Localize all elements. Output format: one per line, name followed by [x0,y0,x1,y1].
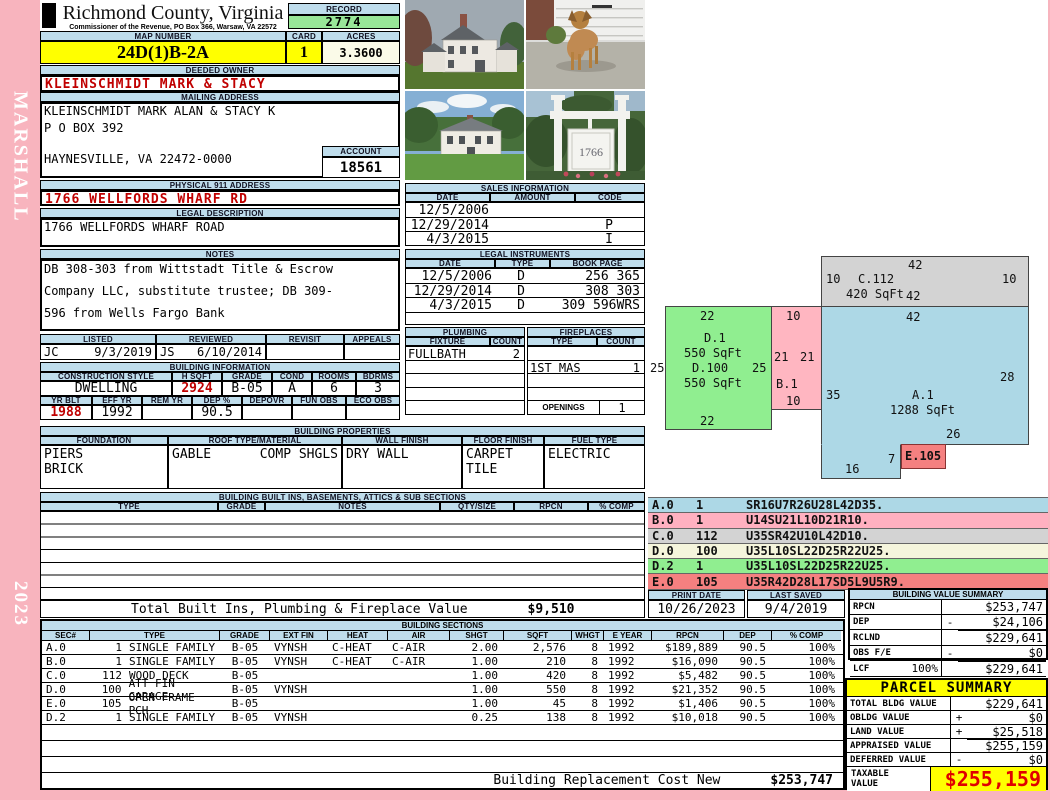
legend-num: 1 [696,498,746,512]
sketch-c-name: C.112 [858,272,894,286]
parcel-row-taxable: TAXABLE VALUE $255,159 [847,767,1046,791]
type-name: SINGLE FAMILY [129,655,215,668]
instr-date: 4/3/2015 [406,298,492,312]
vs-rpcn-op [942,600,958,615]
legend-num: 1 [696,559,746,573]
grade: B-05 [220,641,270,654]
sketch-d-bottom-dim: 22 [700,414,714,428]
sales-date-label: DATE [405,193,490,202]
record-value: 2774 [288,15,400,29]
sketch-region-a [821,306,1029,445]
whgt: 8 [572,641,604,654]
type: 1SINGLE FAMILY [90,711,220,724]
air [388,711,450,724]
parcel-land-label: LAND VALUE [847,725,951,739]
building-sections-table: BUILDING SECTIONS SEC# TYPE GRADE EXT FI… [40,619,845,790]
sign-number-text: 1766 [579,145,603,159]
funobs-label: FUN OBS [292,396,346,405]
rpcn: $10,018 [652,711,724,724]
wall-finish-label: WALL FINISH [342,436,462,445]
depovr-label: DEPOVR [242,396,292,405]
sketch-b-name: B.1 [776,377,798,391]
built-ins-empty-rows [40,511,645,600]
parcel-total-op [951,697,967,711]
vs-row-dep: DEP - $24,106 [850,615,1046,630]
rpcn: $21,352 [652,683,724,696]
rooms-value: 6 [312,381,356,396]
legend-code: SR16U7R26U28L42D35. [746,498,883,512]
comp: 100% [772,655,841,668]
hsqft-value: 2924 [172,381,222,396]
instr-date: 12/29/2014 [406,284,492,298]
sales-code [574,203,644,217]
legend-sec: C.0 [648,529,696,543]
grade-value: B-05 [222,381,272,396]
parcel-row-deferred: DEFERRED VALUE - $0 [847,753,1046,767]
sales-date: 12/5/2006 [406,203,489,217]
vs-row-obs: OBS F/E - $0 [850,646,1046,661]
sketch-b-top-dim: 10 [786,309,800,323]
funobs-value [292,405,346,420]
commissioner-line: Commissioner of the Revenue, PO Box 366,… [58,24,288,31]
plumbing-fixture-label: FIXTURE [405,337,490,346]
sales-amount [489,232,574,247]
fireplace-row [528,374,644,388]
ecoobs-value [346,405,400,420]
vs-rpcn-value: $253,747 [958,600,1046,615]
vs-obs-op: - [942,646,958,661]
parcel-appraised-value: $255,159 [967,739,1046,753]
sec: D.2 [42,711,90,724]
rpcn: $16,090 [652,655,724,668]
construction-style-label: CONSTRUCTION STYLE [40,372,172,381]
sketch-a-left-dim: 35 [826,388,840,402]
vs-lcf-value: $229,641 [958,661,1046,677]
cond-label: COND [272,372,312,381]
comp: 100% [772,669,841,682]
parcel-appraised-label: APPRAISED VALUE [847,739,951,753]
sales-code: P [574,218,644,232]
listed-date: 9/3/2019 [94,345,152,359]
openings-count: 1 [600,401,644,414]
col-heat-label: HEAT [328,631,388,641]
photo-house-front[interactable] [405,0,524,89]
sketch-b-right-dim: 21 [800,350,814,364]
parcel-summary: PARCEL SUMMARY TOTAL BLDG VALUE $229,641… [845,678,1048,790]
replacement-cost-value: $253,747 [770,773,833,788]
rooms-label: ROOMS [312,372,356,381]
shgt: 0.25 [450,711,504,724]
sec: B.0 [42,655,90,668]
listed-label: LISTED [40,334,156,344]
sec: C.0 [42,669,90,682]
legend-code: U35SR42U10L42D10. [746,529,869,543]
sqft: 2,576 [504,641,572,654]
type: 1SINGLE FAMILY [90,655,220,668]
sketch-d-top-dim: 22 [700,309,714,323]
type: 1SINGLE FAMILY [90,641,220,654]
remyr-label: REM YR [142,396,192,405]
legend-row-c: C.0 112 U35SR42U10L42D10. [648,529,1048,544]
sketch-c-left-dim: 10 [826,272,840,286]
built-ins-rpcn-label: RPCN [514,502,588,511]
vs-rpcn-label: RPCN [850,600,942,615]
plumbing-title: PLUMBING [405,327,525,337]
building-properties-title: BUILDING PROPERTIES [40,426,645,436]
grade: B-05 [220,669,270,682]
appeals-label: APPEALS [344,334,400,344]
yrblt-label: YR BLT [40,396,92,405]
built-ins-grade-label: GRADE [218,502,265,511]
type-name: SINGLE FAMILY [129,711,215,724]
heat: C-HEAT [328,655,388,668]
foundation-label: FOUNDATION [40,436,168,445]
foundation-line-1: PIERS [44,447,164,462]
parcel-land-value: $25,518 [967,725,1046,739]
building-sections-header: SEC# TYPE GRADE EXT FIN HEAT AIR SHGT SQ… [42,631,843,641]
appeals-value [344,344,400,360]
dep-pct-value: 90.5 [192,405,242,420]
photo-address-sign[interactable]: 1766 [526,91,645,180]
floor-line-2: TILE [466,462,540,477]
type-num: 100 [90,683,122,696]
instr-type: D [492,284,550,298]
grade: B-05 [220,683,270,696]
rpcn: $5,482 [652,669,724,682]
built-ins-qty-label: QTY/SIZE [440,502,514,511]
print-date-value: 10/26/2023 [648,600,745,618]
sketch-d-left-dim: 25 [650,361,664,375]
whgt: 8 [572,711,604,724]
comp: 100% [772,683,841,696]
ext-fin [270,669,328,682]
instr-book: 308 303 [550,284,644,298]
whgt: 8 [572,683,604,696]
instrument-row: 4/3/2015 D 309 596WRS [406,298,644,313]
fireplace-type: 1ST MAS [528,361,614,374]
fuel-type-label: FUEL TYPE [544,436,645,445]
revisit-value [266,344,344,360]
last-saved-label: LAST SAVED [747,590,845,600]
plumbing-row [406,388,524,402]
hsqft-label: H SQFT [172,372,222,381]
reviewed-date: 6/10/2014 [197,345,262,359]
parcel-row-total: TOTAL BLDG VALUE $229,641 [847,697,1046,711]
plumbing-row: FULLBATH 2 [406,347,524,361]
dep: 90.5 [724,697,772,710]
legend-sec: D.0 [648,544,696,558]
legend-code: U14SU21L10D21R10. [746,513,869,527]
sketch-b-left-dim: 21 [774,350,788,364]
col-shgt-label: SHGT [450,631,504,641]
fireplaces-count-label: COUNT [597,337,645,346]
sec: D.0 [42,683,90,696]
page-title: Richmond County, Virginia [58,2,288,25]
sketch-c-sqft: 420 SqFt [846,287,904,301]
parcel-deferred-label: DEFERRED VALUE [847,753,951,767]
rpcn: $1,406 [652,697,724,710]
built-ins-title: BUILDING BUILT INS, BASEMENTS, ATTICS & … [40,492,645,502]
sketch-d-right-dim: 25 [752,361,766,375]
empty-row [42,725,843,741]
type-num: 105 [90,697,122,710]
instr-date-label: DATE [405,259,495,268]
foundation-line-2: BRICK [44,462,164,477]
mailing-line-3: HAYNESVILLE, VA 22472-0000 [44,152,232,166]
legend-code: U35R42D28L17SD5L9U5R9. [746,575,905,589]
grade-label: GRADE [222,372,272,381]
vs-rclnd-op [942,630,958,646]
instr-book-label: BOOK PAGE [550,259,645,268]
instr-type-label: TYPE [495,259,550,268]
roof-type-value: GABLE [172,447,211,462]
instrument-row: 12/29/2014 D 308 303 [406,284,644,299]
instruments-table: 12/5/2006 D 256 365 12/29/2014 D 308 303… [405,268,645,325]
fireplaces-title: FIREPLACES [527,327,645,337]
eyear: 1992 [604,683,652,696]
vs-row-rclnd: RCLND $229,641 [850,630,1046,646]
type-num: 1 [90,711,122,724]
eyear: 1992 [604,711,652,724]
plumbing-row [406,374,524,388]
legend-row-d0: D.0 100 U35L10SL22D25R22U25. [648,544,1048,559]
sketch-a-step-dim: 7 [888,452,895,466]
legend-sec: E.0 [648,575,696,589]
sales-info-title: SALES INFORMATION [405,183,645,193]
air: C-AIR [388,655,450,668]
ext-fin [270,697,328,710]
vs-dep-value: $24,106 [958,615,1046,630]
mailing-line-2: P O BOX 392 [44,121,123,135]
sales-row: 12/5/2006 [406,203,644,218]
bdrms-value: 3 [356,381,400,396]
photo-house-lawn[interactable] [405,91,524,180]
effyr-value: 1992 [92,405,142,420]
col-ext-label: EXT FIN [270,631,328,641]
type-num: 112 [90,669,122,682]
col-sec-label: SEC# [42,631,90,641]
roof-material-value: COMP SHGLS [260,447,338,462]
vs-lcf-pct: 100% [912,662,939,675]
fireplaces-table: 1ST MAS 1 OPENINGS 1 [527,346,645,415]
legend-num: 112 [696,529,746,543]
taxable-value: $255,159 [931,767,1046,791]
eyear: 1992 [604,669,652,682]
comp: 100% [772,641,841,654]
instr-book: 256 365 [550,269,644,283]
type-num: 1 [90,655,122,668]
legal-description-value: 1766 WELLFORDS WHARF ROAD [44,220,225,234]
ext-fin: VYNSH [270,655,328,668]
floor-finish-value: CARPET TILE [462,445,544,489]
sketch-a-bottom-dim: 16 [845,462,859,476]
comp: 100% [772,711,841,724]
sketch-c-top-dim: 42 [908,258,922,272]
sketch-c-bottom-dim: 42 [906,289,920,303]
vs-rclnd-label: RCLND [850,630,942,646]
wall-finish-value: DRY WALL [342,445,462,489]
eyear: 1992 [604,641,652,654]
reviewed-label: REVIEWED [156,334,266,344]
sketch-a-sqft: 1288 SqFt [890,403,955,417]
record-card-app: { "side": { "name": "MARSHALL", "year": … [0,0,1050,800]
shgt: 2.00 [450,641,504,654]
heat: C-HEAT [328,641,388,654]
print-date-label: PRINT DATE [648,590,745,600]
vs-dep-op: - [942,615,958,630]
parcel-obldg-op: + [951,711,967,725]
instr-type: D [492,298,550,312]
vs-lcf-label: LCF 100% [850,661,942,677]
legend-num: 1 [696,513,746,527]
plumbing-count: 2 [492,347,524,360]
sketch-b-bottom-dim: 10 [786,394,800,408]
air [388,697,450,710]
shgt: 1.00 [450,683,504,696]
legend-num: 105 [696,575,746,589]
sales-row: 12/29/2014 P [406,218,644,233]
notes-line-1: DB 308-303 from Wittstadt Title & Escrow [44,262,333,276]
type-num: 1 [90,641,122,654]
photo-dog[interactable] [526,0,645,89]
taxable-label: TAXABLE VALUE [847,767,931,791]
legend-row-d2: D.2 1 U35L10SL22D25R22U25. [648,559,1048,574]
remyr-value [142,405,192,420]
col-whgt-label: WHGT [572,631,604,641]
type: 105OPEN FRAME PCH [90,697,220,710]
mailing-address-label: MAILING ADDRESS [40,92,400,102]
legend-sec: D.2 [648,559,696,573]
legend-row-a: A.0 1 SR16U7R26U28L42D35. [648,498,1048,513]
col-eyear-label: E YEAR [604,631,652,641]
heat [328,669,388,682]
sketch-e-name: E.105 [905,449,941,463]
record-label: RECORD [288,3,400,15]
vs-row-lcf: LCF 100% $229,641 [850,661,1046,677]
sketch-d100-sqft: 550 SqFt [684,376,742,390]
cond-value: A [272,381,312,396]
vs-rclnd-value: $229,641 [958,630,1046,646]
air [388,669,450,682]
parcel-land-op: + [951,725,967,739]
heat [328,683,388,696]
shgt: 1.00 [450,697,504,710]
parcel-row-land: LAND VALUE + $25,518 [847,725,1046,739]
fireplace-row [528,388,644,402]
listed-value: JC9/3/2019 [40,344,156,360]
eyear: 1992 [604,697,652,710]
sketch-c-right-dim: 10 [1002,272,1016,286]
mailing-line-1: KLEINSCHMIDT MARK ALAN & STACY K [44,104,275,118]
sales-amount [489,218,574,232]
building-sections-title: BUILDING SECTIONS [42,621,843,631]
openings-label: OPENINGS [528,401,600,414]
whgt: 8 [572,697,604,710]
ecoobs-label: ECO OBS [346,396,400,405]
grade: B-05 [220,711,270,724]
dep-pct-label: DEP % [192,396,242,405]
instr-type: D [492,269,550,283]
air: C-AIR [388,641,450,654]
fuel-type-value: ELECTRIC [544,445,645,489]
legend-num: 100 [696,544,746,558]
legend-code: U35L10SL22D25R22U25. [746,544,891,558]
sec: E.0 [42,697,90,710]
parcel-row-appraised: APPRAISED VALUE $255,159 [847,739,1046,753]
replacement-cost-label: Building Replacement Cost New [493,773,720,788]
spine-year: 2023 [0,568,40,640]
col-comp-label: % COMP [772,631,841,641]
building-info-title: BUILDING INFORMATION [40,362,400,372]
eyear: 1992 [604,655,652,668]
col-sqft-label: SQFT [504,631,572,641]
reviewed-value: JS6/10/2014 [156,344,266,360]
section-row: D.2 1SINGLE FAMILY B-05 VYNSH 0.25 138 8… [42,711,843,725]
parcel-appraised-op [951,739,967,753]
grade: B-05 [220,655,270,668]
dep: 90.5 [724,669,772,682]
notes-label: NOTES [40,249,400,259]
instr-book: 309 596WRS [550,298,644,312]
construction-style-value: DWELLING [40,381,172,396]
rpcn: $189,889 [652,641,724,654]
sqft: 45 [504,697,572,710]
roof-label: ROOF TYPE/MATERIAL [168,436,342,445]
reviewed-by: JS [160,345,174,359]
parcel-total-label: TOTAL BLDG VALUE [847,697,951,711]
replacement-cost-row: Building Replacement Cost New $253,747 [42,773,843,788]
ext-fin: VYNSH [270,683,328,696]
sales-code: I [574,232,644,247]
fireplace-openings-row: OPENINGS 1 [528,401,644,414]
foundation-value: PIERS BRICK [40,445,168,489]
building-value-summary-title: BUILDING VALUE SUMMARY [850,590,1046,600]
empty-row [42,741,843,757]
instr-date: 12/5/2006 [406,269,492,283]
taxable-label-line1: TAXABLE [851,769,889,779]
sketch-a-right-dim: 28 [1000,370,1014,384]
vs-lcf-op [942,661,958,677]
acres-label: ACRES [322,31,400,41]
dep: 90.5 [724,641,772,654]
sales-amount-label: AMOUNT [490,193,575,202]
sketch-a-notch-dim: 26 [946,427,960,441]
yrblt-value: 1988 [40,405,92,420]
sales-date: 12/29/2014 [406,218,489,232]
parcel-obldg-label: OBLDG VALUE [847,711,951,725]
vs-row-rpcn: RPCN $253,747 [850,600,1046,615]
roof-value: GABLE COMP SHGLS [168,445,342,489]
grade: B-05 [220,697,270,710]
map-number-label: MAP NUMBER [40,31,286,41]
ext-fin: VYNSH [270,641,328,654]
depovr-value [242,405,292,420]
type-name: SINGLE FAMILY [129,641,215,654]
col-type-label: TYPE [90,631,220,641]
physical-address-label: PHYSICAL 911 ADDRESS [40,180,400,190]
built-ins-total-row: Total Built Ins, Plumbing & Fireplace Va… [40,600,645,618]
map-number-value: 24D(1)B-2A [40,41,286,64]
notes-line-2: Company LLC, substitute trustee; DB 309- [44,284,333,298]
deeded-owner-label: DEEDED OWNER [40,65,400,75]
legend-code: U35L10SL22D25R22U25. [746,559,891,573]
sales-date: 4/3/2015 [406,232,489,247]
last-saved-value: 9/4/2019 [747,600,845,618]
parcel-row-obldg: OBLDG VALUE + $0 [847,711,1046,725]
parcel-obldg-value: $0 [967,711,1046,725]
plumbing-table: FULLBATH 2 [405,346,525,415]
built-ins-comp-label: % COMP [588,502,645,511]
